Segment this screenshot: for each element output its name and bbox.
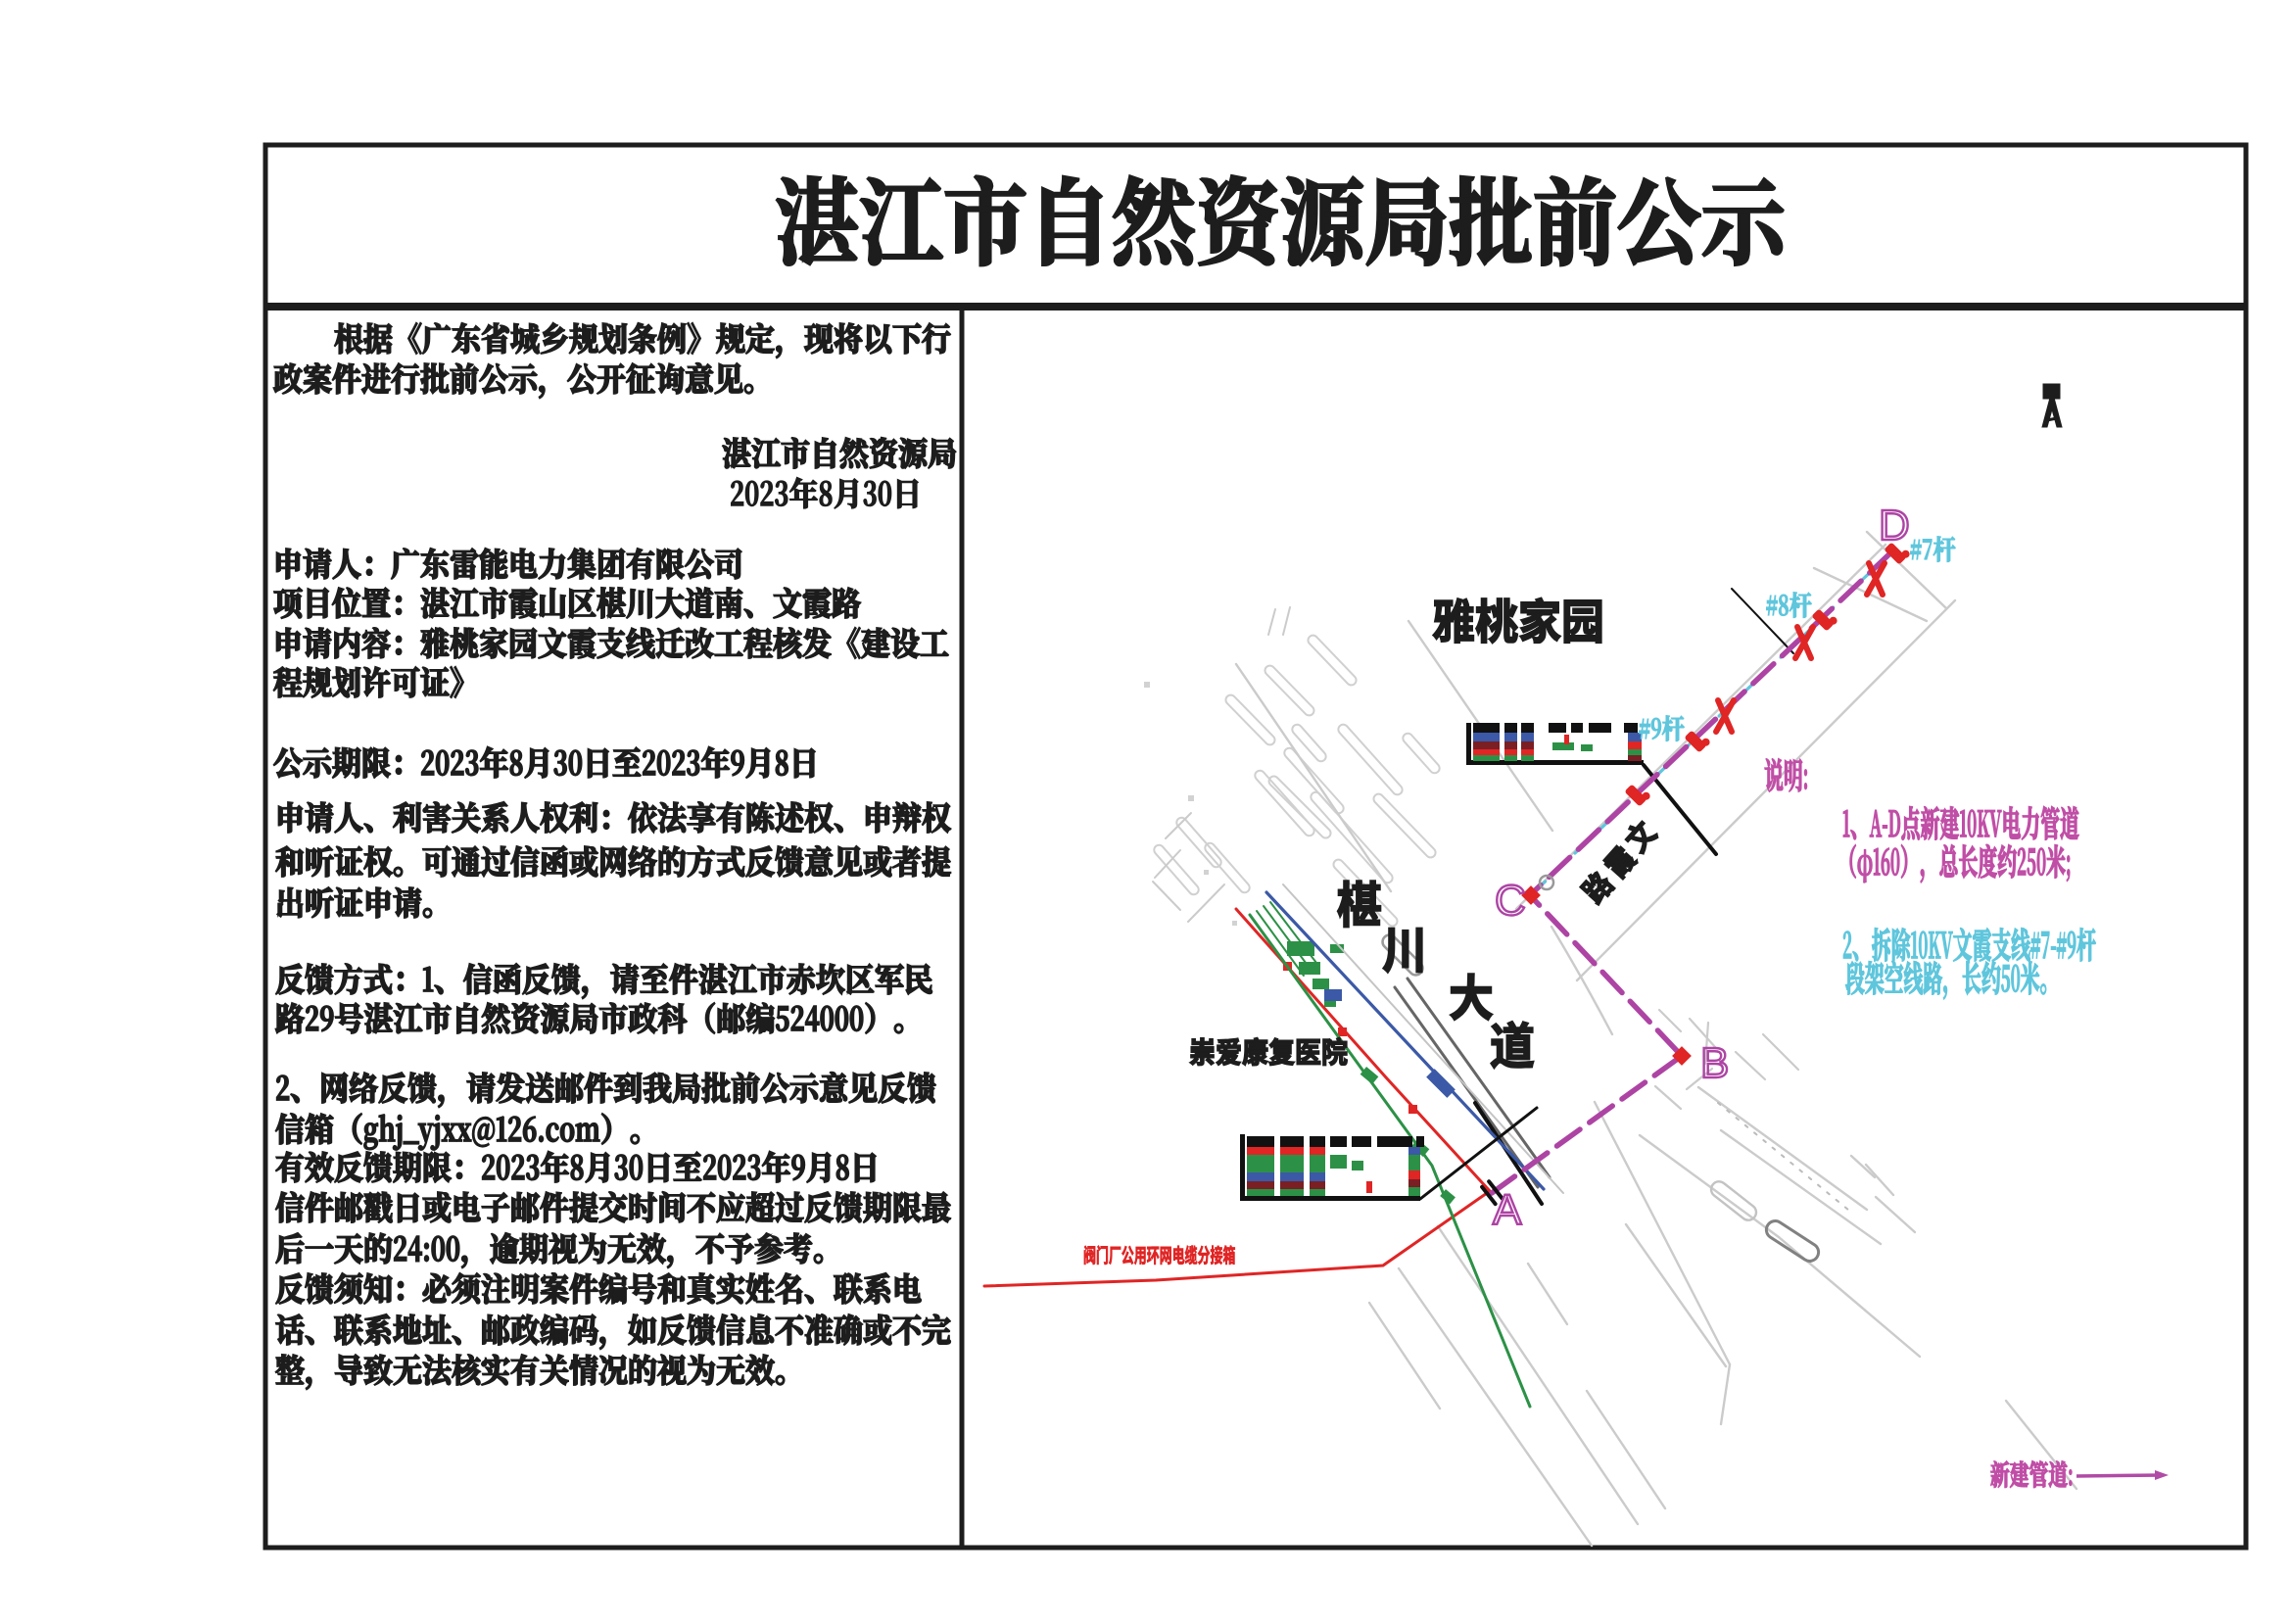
svg-text:A: A [1493, 1186, 1522, 1234]
svg-text:C: C [1495, 877, 1526, 925]
svg-text:D: D [1879, 502, 1910, 549]
svg-text:B: B [1700, 1039, 1729, 1087]
